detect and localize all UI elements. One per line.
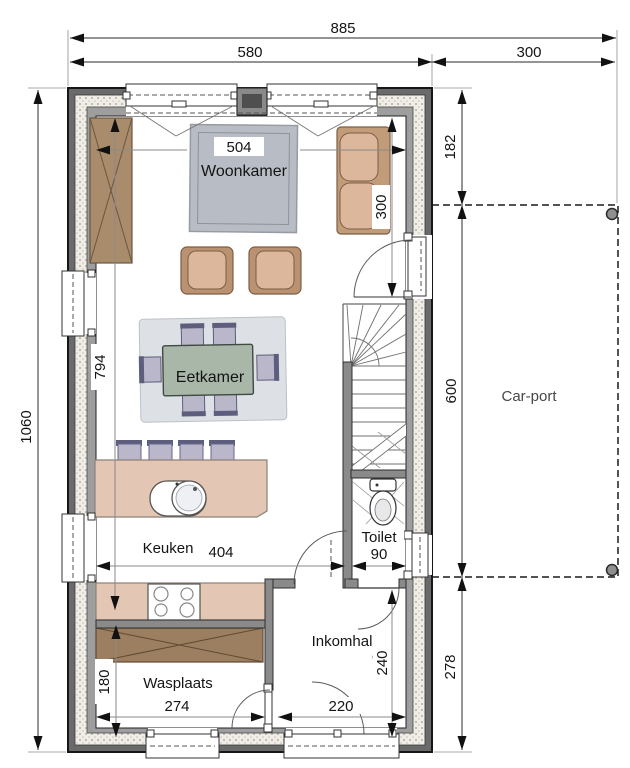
armchair <box>249 247 301 294</box>
floor-plan: 885 580 300 1060 182 600 278 504 300 794… <box>0 0 630 768</box>
armchair <box>181 247 233 294</box>
room-label-carport: Car-port <box>501 388 557 405</box>
dim-house-width: 580 <box>237 44 262 61</box>
room-label-inkomhal: Inkomhal <box>312 633 373 650</box>
toilet-fixture <box>370 479 396 525</box>
kitchen-counter <box>96 583 267 620</box>
dim-total-depth: 1060 <box>18 410 35 443</box>
dim-right-bottom: 278 <box>442 654 459 679</box>
laundry-cabinet <box>96 628 263 662</box>
room-label-woonkamer: Woonkamer <box>201 163 288 180</box>
window-bottom-entrance <box>284 730 399 758</box>
dim-carport-width: 300 <box>516 44 541 61</box>
dim-living-width: 504 <box>226 139 251 156</box>
room-label-toilet: Toilet <box>361 529 397 546</box>
dim-sofa-wall: 300 <box>373 194 390 219</box>
dim-hall-width: 220 <box>328 698 353 715</box>
dim-hall-depth: 240 <box>374 650 391 675</box>
wardrobe <box>90 118 132 263</box>
dim-kitchen-width: 404 <box>208 544 233 561</box>
room-label-wasplaats: Wasplaats <box>143 675 212 692</box>
window-bottom-laundry <box>146 730 219 758</box>
dim-right-top: 182 <box>442 134 459 159</box>
dim-carport-depth: 600 <box>443 378 460 403</box>
window-mullion <box>237 88 267 115</box>
dim-total-width: 885 <box>330 20 355 37</box>
carport-post <box>607 209 618 220</box>
dim-interior-depth: 794 <box>92 354 109 379</box>
dim-laundry-width: 274 <box>164 698 189 715</box>
sink <box>150 481 206 516</box>
cooktop <box>148 584 200 620</box>
carport-post <box>607 565 618 576</box>
dim-toilet-width: 90 <box>371 546 388 563</box>
room-label-keuken: Keuken <box>143 540 194 557</box>
dim-laundry-cabinet: 180 <box>96 669 113 694</box>
floor-plan-svg: 885 580 300 1060 182 600 278 504 300 794… <box>0 0 630 768</box>
room-label-eetkamer: Eetkamer <box>176 369 245 386</box>
